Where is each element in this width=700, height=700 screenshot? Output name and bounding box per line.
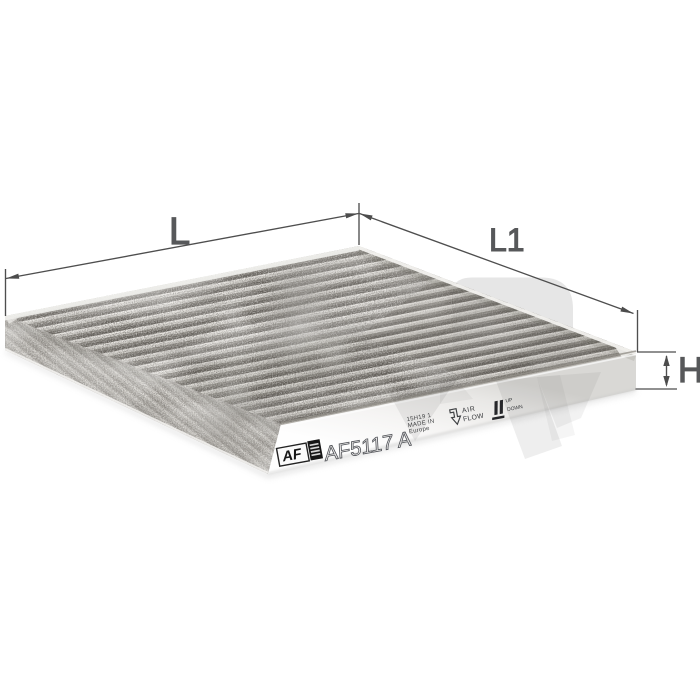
svg-text:H: H (678, 351, 700, 390)
svg-text:L: L (169, 211, 190, 253)
svg-text:L1: L1 (489, 222, 525, 258)
